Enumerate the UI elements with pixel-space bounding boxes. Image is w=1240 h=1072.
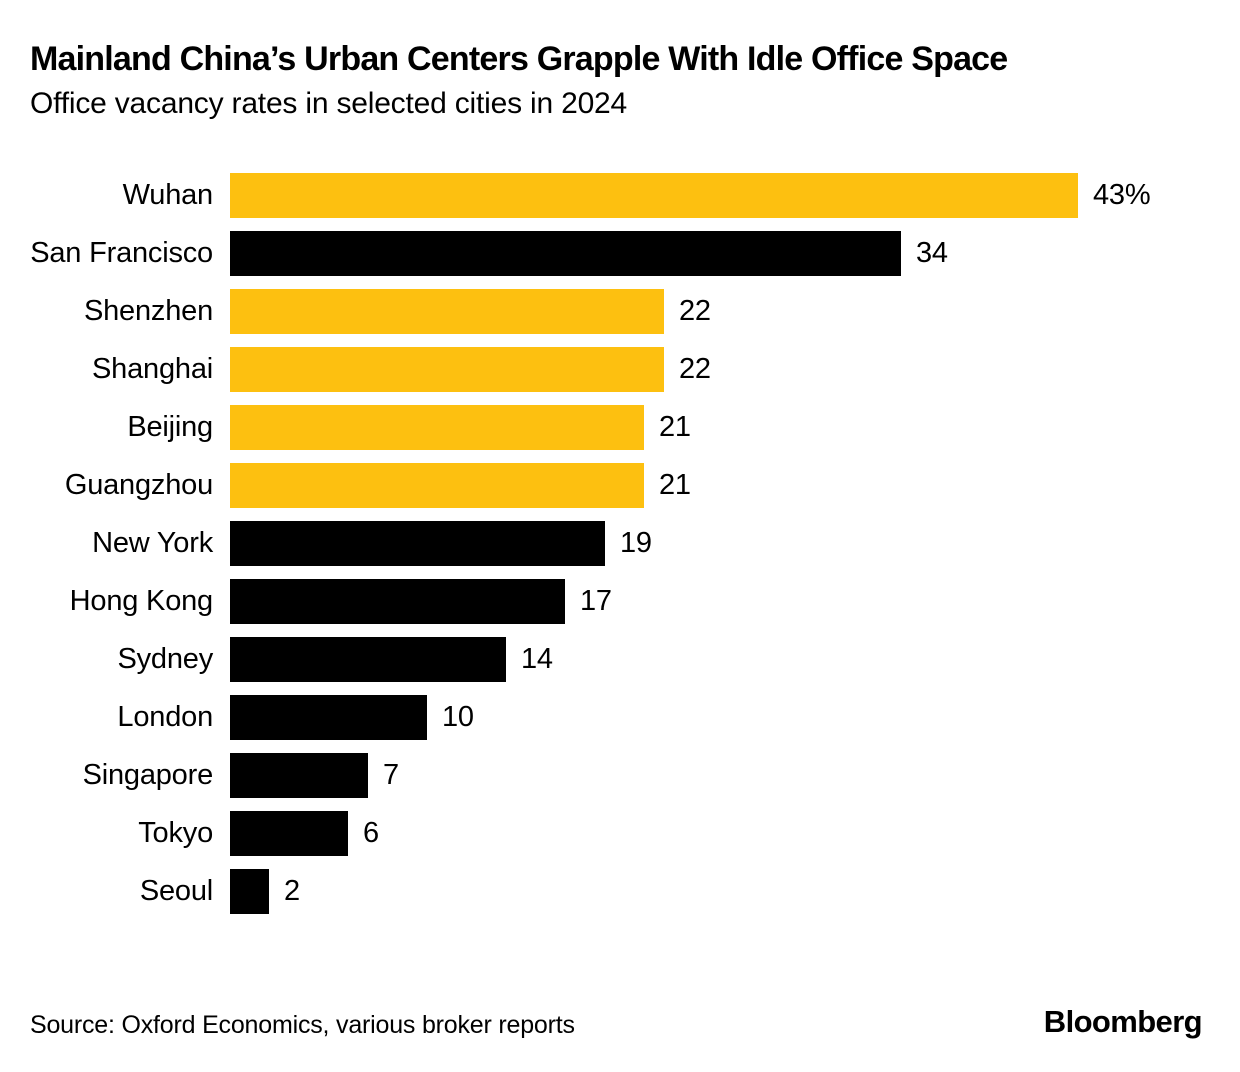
value-label: 22: [679, 295, 711, 328]
value-label: 2: [284, 875, 300, 908]
bar-row: New York 19: [0, 521, 1240, 566]
chart-footer: Source: Oxford Economics, various broker…: [30, 1004, 1202, 1040]
bar-row: San Francisco 34: [0, 231, 1240, 276]
bar-row: Sydney 14: [0, 637, 1240, 682]
bar-row: Hong Kong 17: [0, 579, 1240, 624]
category-label: Singapore: [0, 759, 213, 792]
value-label: 7: [383, 759, 399, 792]
category-label: Tokyo: [0, 817, 213, 850]
value-label: 10: [442, 701, 474, 734]
value-label: 14: [521, 643, 553, 676]
bar: [230, 753, 368, 798]
category-label: Seoul: [0, 875, 213, 908]
value-label: 6: [363, 817, 379, 850]
bar: [230, 173, 1078, 218]
category-label: Hong Kong: [0, 585, 213, 618]
horizontal-bar-chart: Wuhan 43% San Francisco 34 Shenzhen 22 S…: [0, 173, 1240, 927]
bar: [230, 579, 565, 624]
category-label: Wuhan: [0, 179, 213, 212]
chart-title: Mainland China’s Urban Centers Grapple W…: [30, 40, 1007, 79]
bar-row: Shenzhen 22: [0, 289, 1240, 334]
bar-row: London 10: [0, 695, 1240, 740]
category-label: Sydney: [0, 643, 213, 676]
bar: [230, 695, 427, 740]
bar-row: Singapore 7: [0, 753, 1240, 798]
bar-row: Tokyo 6: [0, 811, 1240, 856]
source-note: Source: Oxford Economics, various broker…: [30, 1011, 575, 1040]
bar: [230, 521, 605, 566]
value-label: 34: [916, 237, 948, 270]
bar: [230, 289, 664, 334]
chart-subtitle: Office vacancy rates in selected cities …: [30, 87, 627, 121]
value-label: 19: [620, 527, 652, 560]
bar-row: Guangzhou 21: [0, 463, 1240, 508]
value-label: 22: [679, 353, 711, 386]
value-label: 21: [659, 411, 691, 444]
bar: [230, 347, 664, 392]
value-label: 17: [580, 585, 612, 618]
bar-row: Beijing 21: [0, 405, 1240, 450]
category-label: Shenzhen: [0, 295, 213, 328]
bar-row: Seoul 2: [0, 869, 1240, 914]
bar: [230, 637, 506, 682]
bar: [230, 231, 901, 276]
category-label: San Francisco: [0, 237, 213, 270]
category-label: New York: [0, 527, 213, 560]
category-label: London: [0, 701, 213, 734]
bar: [230, 811, 348, 856]
category-label: Guangzhou: [0, 469, 213, 502]
value-label: 43%: [1093, 179, 1150, 212]
bloomberg-logo: Bloomberg: [1044, 1004, 1202, 1040]
category-label: Shanghai: [0, 353, 213, 386]
bar: [230, 463, 644, 508]
bar-row: Shanghai 22: [0, 347, 1240, 392]
bar-row: Wuhan 43%: [0, 173, 1240, 218]
value-label: 21: [659, 469, 691, 502]
bar: [230, 869, 269, 914]
bar: [230, 405, 644, 450]
category-label: Beijing: [0, 411, 213, 444]
